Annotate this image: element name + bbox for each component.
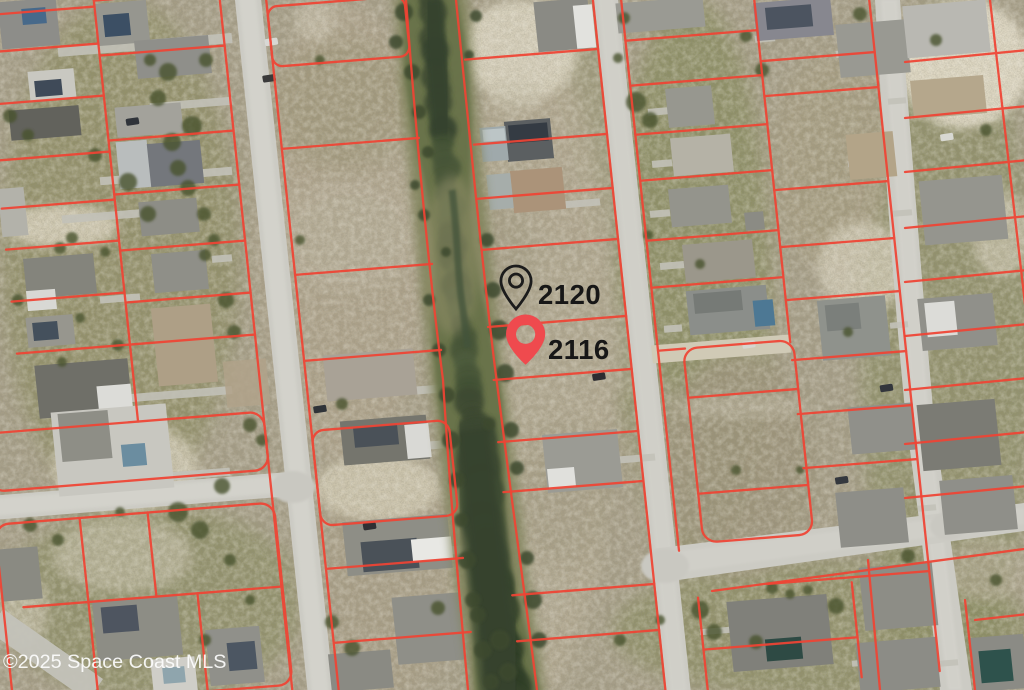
svg-text:2116: 2116 xyxy=(548,334,610,365)
svg-text:©2025 Space Coast MLS: ©2025 Space Coast MLS xyxy=(3,651,227,673)
svg-text:2120: 2120 xyxy=(538,279,601,310)
